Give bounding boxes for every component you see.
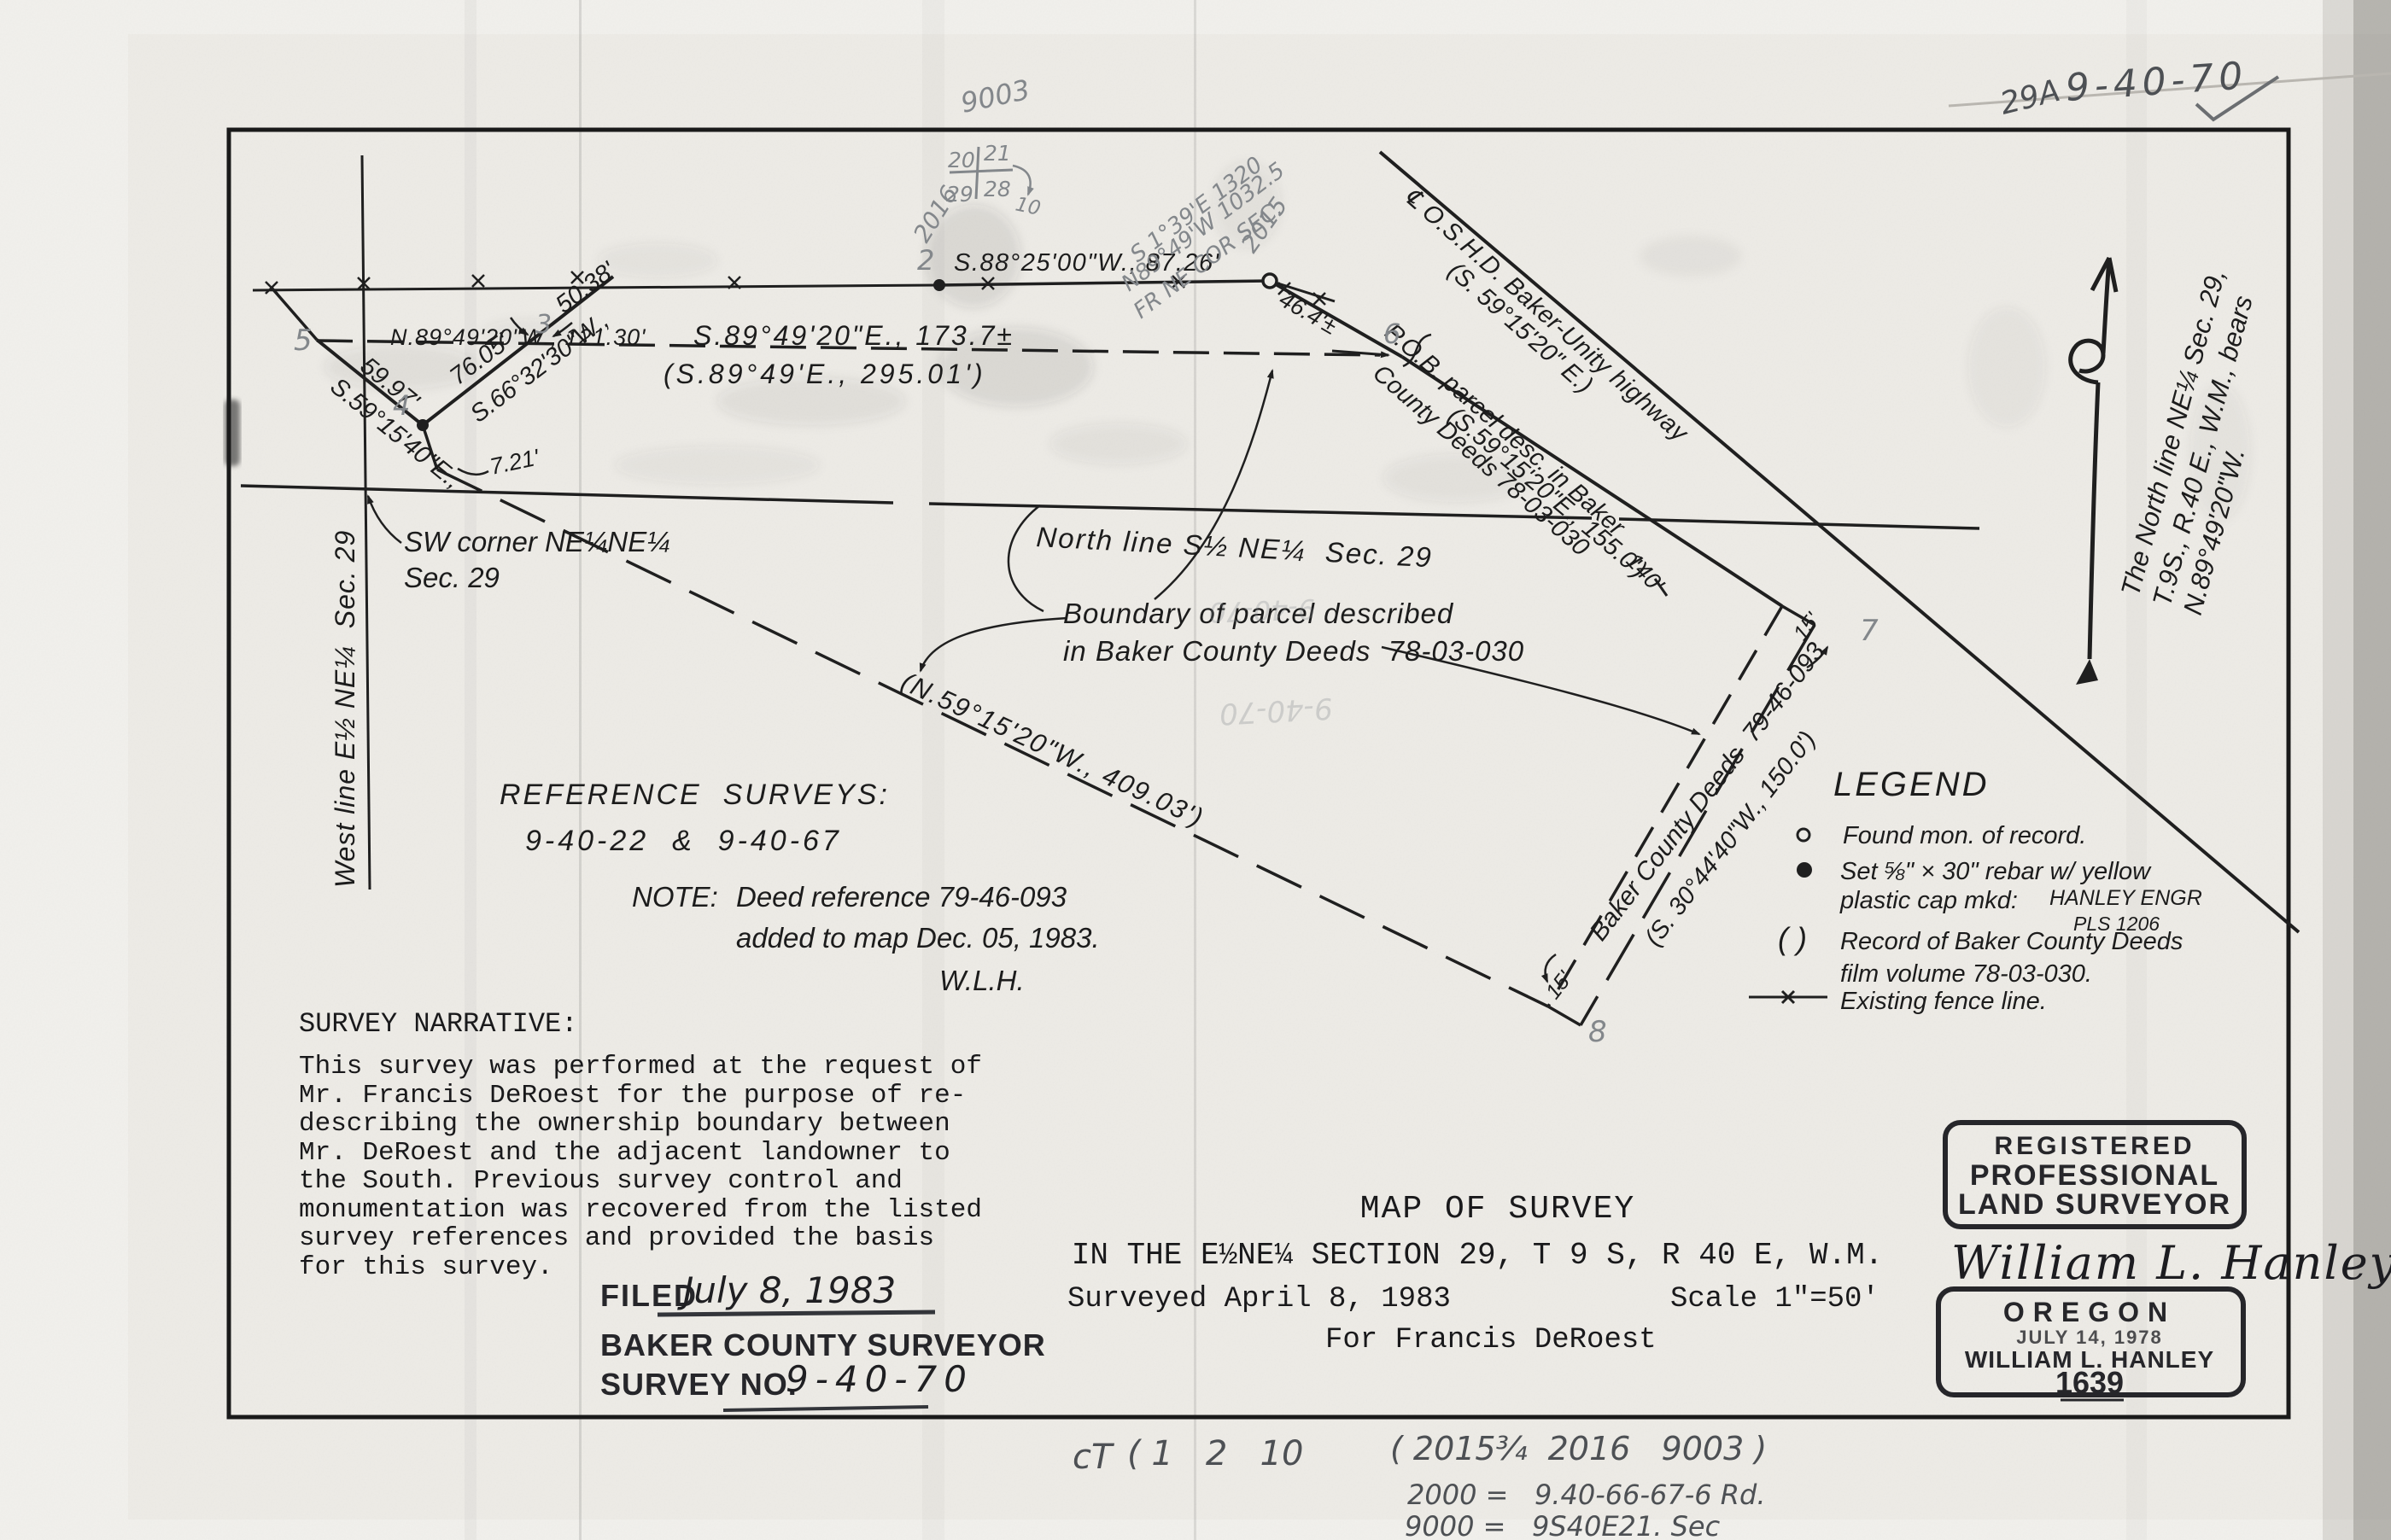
- legend-heading: LEGEND: [1833, 766, 1990, 803]
- legend-set-text-2: plastic cap mkd:: [1839, 887, 2018, 914]
- legend-cap-marking: HANLEY ENGR: [2049, 886, 2202, 910]
- map-client: For Francis DeRoest: [1325, 1324, 1657, 1356]
- reference-numbers: 9-40-22 & 9-40-67: [525, 825, 842, 857]
- point-2: 2: [917, 244, 934, 277]
- corner-sec-28: 28: [984, 177, 1011, 201]
- filed-office: BAKER COUNTY SURVEYOR: [600, 1327, 1046, 1362]
- bearing-deed-right-record: (S.89°49'E., 295.01'): [664, 359, 986, 389]
- point-8: 8: [1588, 1015, 1607, 1049]
- point-5: 5: [294, 324, 313, 358]
- narrative-line: the South. Previous survey control and: [299, 1166, 903, 1196]
- legend-fence-text: Existing fence line.: [1840, 988, 2047, 1015]
- legend-record-text-2: film volume 78-03-030.: [1840, 960, 2092, 988]
- bottom-note-9000: 9000 = 9S40E21. Sec: [1405, 1510, 1721, 1540]
- map-scale: Scale 1"=50': [1670, 1283, 1879, 1315]
- stamp-state: OREGON: [2003, 1297, 2176, 1327]
- fold-line: [579, 0, 582, 1540]
- point-4: 4: [393, 389, 410, 422]
- bottom-note-2000: 2000 = 9.40-66-67-6 Rd.: [1407, 1479, 1766, 1511]
- survey-no-label: SURVEY NO.: [600, 1367, 798, 1402]
- filed-date: July 8, 1983: [677, 1269, 896, 1311]
- map-title: MAP OF SURVEY: [1360, 1191, 1635, 1228]
- narrative-line: Mr. Francis DeRoest for the purpose of r…: [299, 1081, 966, 1111]
- bottom-note-ids: ( 2015¾ 2016 9003 ): [1390, 1430, 1767, 1467]
- legend-record-symbol: ( ): [1778, 921, 1807, 956]
- narrative-line: monumentation was recovered from the lis…: [299, 1195, 982, 1225]
- map-location: IN THE E½NE¼ SECTION 29, T 9 S, R 40 E, …: [1072, 1238, 1884, 1273]
- sw-corner-label-2: Sec. 29: [404, 562, 500, 593]
- bottom-note-points: ( 1 2 10: [1127, 1434, 1303, 1473]
- point-6: 6: [1383, 318, 1400, 350]
- reference-heading: REFERENCE SURVEYS:: [500, 779, 890, 811]
- point-3: 3: [535, 310, 552, 340]
- narrative-line: survey references and provided the basis: [299, 1223, 934, 1253]
- stamp-date: JULY 14, 1978: [2016, 1327, 2163, 1348]
- map-surveyed-date: Surveyed April 8, 1983: [1067, 1283, 1451, 1315]
- note-initials: W.L.H.: [939, 965, 1025, 996]
- filed-underline: [658, 1312, 935, 1315]
- point-7: 7: [1860, 614, 1879, 648]
- set-rebar-symbol: [933, 279, 945, 291]
- legend-set-rebar-icon: [1797, 862, 1812, 878]
- narrative-line: describing the ownership boundary betwee…: [299, 1109, 950, 1139]
- narrative-line: for this survey.: [299, 1252, 553, 1282]
- note-label: NOTE:: [632, 881, 718, 913]
- boundary-callout-2: in Baker County Deeds 78-03-030: [1063, 635, 1524, 667]
- stamp-professional: PROFESSIONAL: [1970, 1159, 2219, 1192]
- surveyor-signature: William L. Hanley: [1951, 1236, 2391, 1290]
- legend-record-text-1: Record of Baker County Deeds: [1840, 928, 2183, 955]
- narrative-line: This survey was performed at the request…: [299, 1052, 982, 1082]
- set-rebar-symbol: [417, 419, 429, 431]
- survey-map-scan: N.89°49'20"W., 121.30' 50.38' S.89°49'20…: [0, 0, 2391, 1540]
- corner-sec-21: 21: [984, 141, 1011, 166]
- note-line-2: added to map Dec. 05, 1983.: [736, 922, 1100, 954]
- stamp-registered: REGISTERED: [1994, 1132, 2195, 1160]
- stamp-number: 1639: [2055, 1365, 2124, 1400]
- narrative-heading: SURVEY NARRATIVE:: [299, 1008, 577, 1040]
- sw-corner-label-1: SW corner NE¼NE¼: [404, 526, 670, 557]
- bottom-note-ct: cT: [1073, 1438, 1115, 1477]
- legend-found-text: Found mon. of record.: [1843, 822, 2086, 849]
- found-monument-symbol: [1263, 274, 1277, 288]
- stamp-land-surveyor: LAND SURVEYOR: [1958, 1188, 2231, 1221]
- survey-no-value: 9-40-70: [786, 1358, 973, 1400]
- ghost-survey-no: 9-40-70: [1208, 592, 1316, 628]
- legend-set-text-1: Set ⅝" × 30" rebar w/ yellow: [1840, 858, 2152, 885]
- west-line-label: West line E½ NE¼ Sec. 29: [330, 530, 360, 888]
- note-line-1: Deed reference 79-46-093: [736, 881, 1067, 913]
- corner-sec-20: 20: [948, 148, 975, 172]
- ghost-survey-no: 9-40-70: [1219, 691, 1334, 731]
- narrative-line: Mr. DeRoest and the adjacent landowner t…: [299, 1138, 950, 1168]
- bearing-deed-right: S.89°49'20"E., 173.7±: [693, 320, 1014, 351]
